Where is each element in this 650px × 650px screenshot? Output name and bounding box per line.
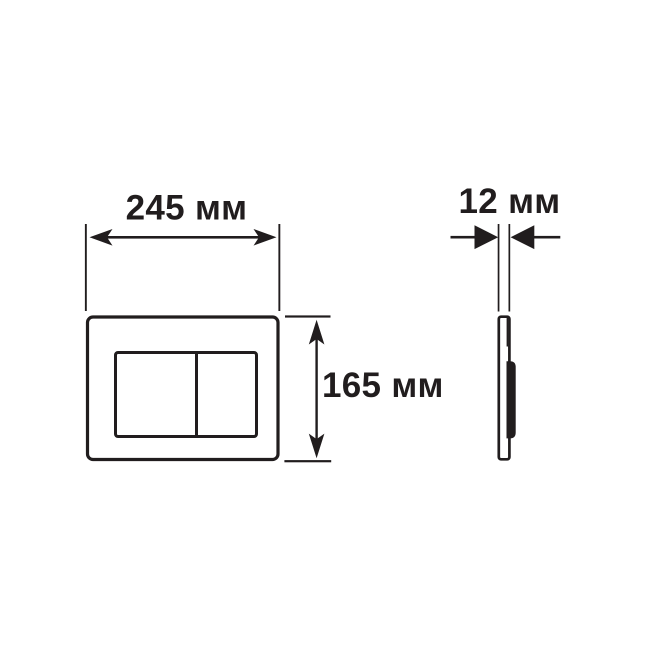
svg-text:165 мм: 165 мм	[322, 366, 444, 405]
svg-text:245 мм: 245 мм	[126, 189, 248, 228]
svg-text:12 мм: 12 мм	[459, 182, 561, 221]
